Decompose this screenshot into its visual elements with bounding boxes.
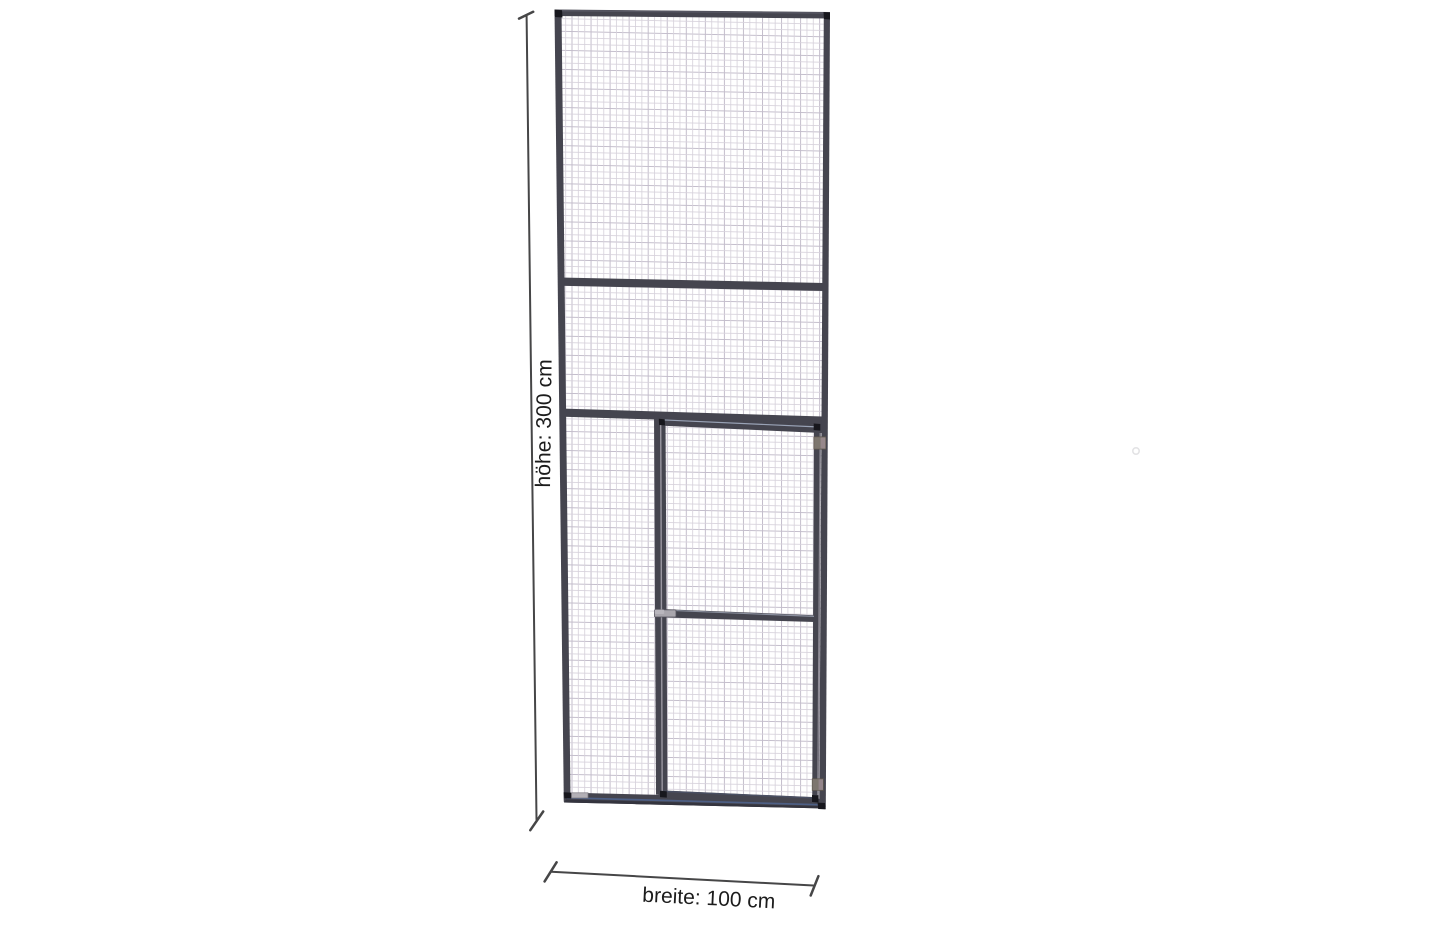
svg-text:höhe: 300 cm: höhe: 300 cm xyxy=(532,359,557,488)
